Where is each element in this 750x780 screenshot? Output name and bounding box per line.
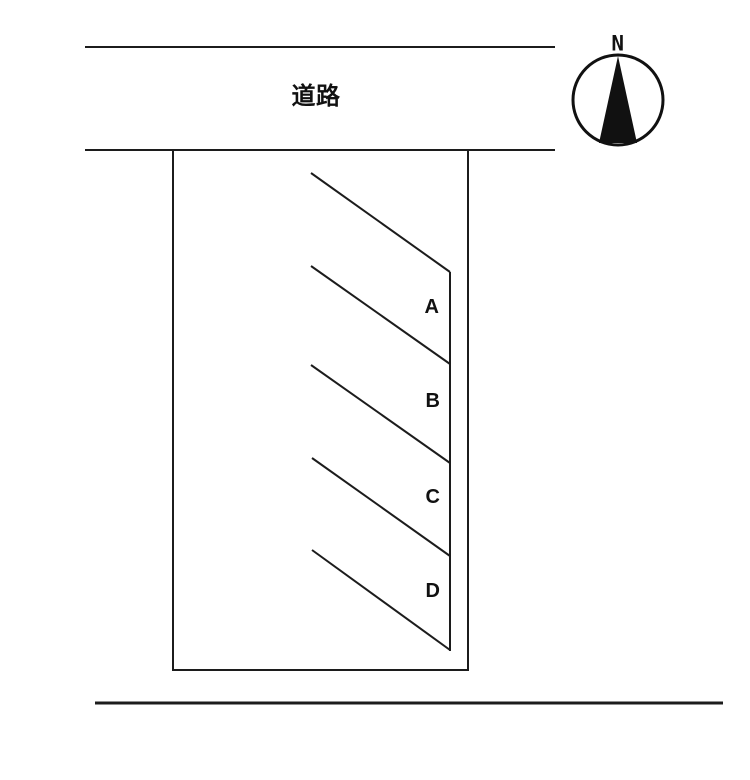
parcel-boundary (173, 150, 468, 670)
plot-label-b: B (426, 391, 441, 411)
compass-needle-icon (599, 56, 637, 143)
road-label: 道路 (292, 85, 341, 109)
plot-label-d: D (426, 581, 441, 601)
compass-north-label: N (611, 34, 624, 55)
parking-divider-line-3 (311, 365, 450, 463)
parking-divider-line-1 (311, 173, 450, 272)
site-plan-diagram: 道路 N A B C D (0, 0, 750, 780)
plot-label-a: A (425, 297, 440, 317)
plot-label-c: C (426, 487, 441, 507)
diagram-lines (0, 0, 750, 780)
